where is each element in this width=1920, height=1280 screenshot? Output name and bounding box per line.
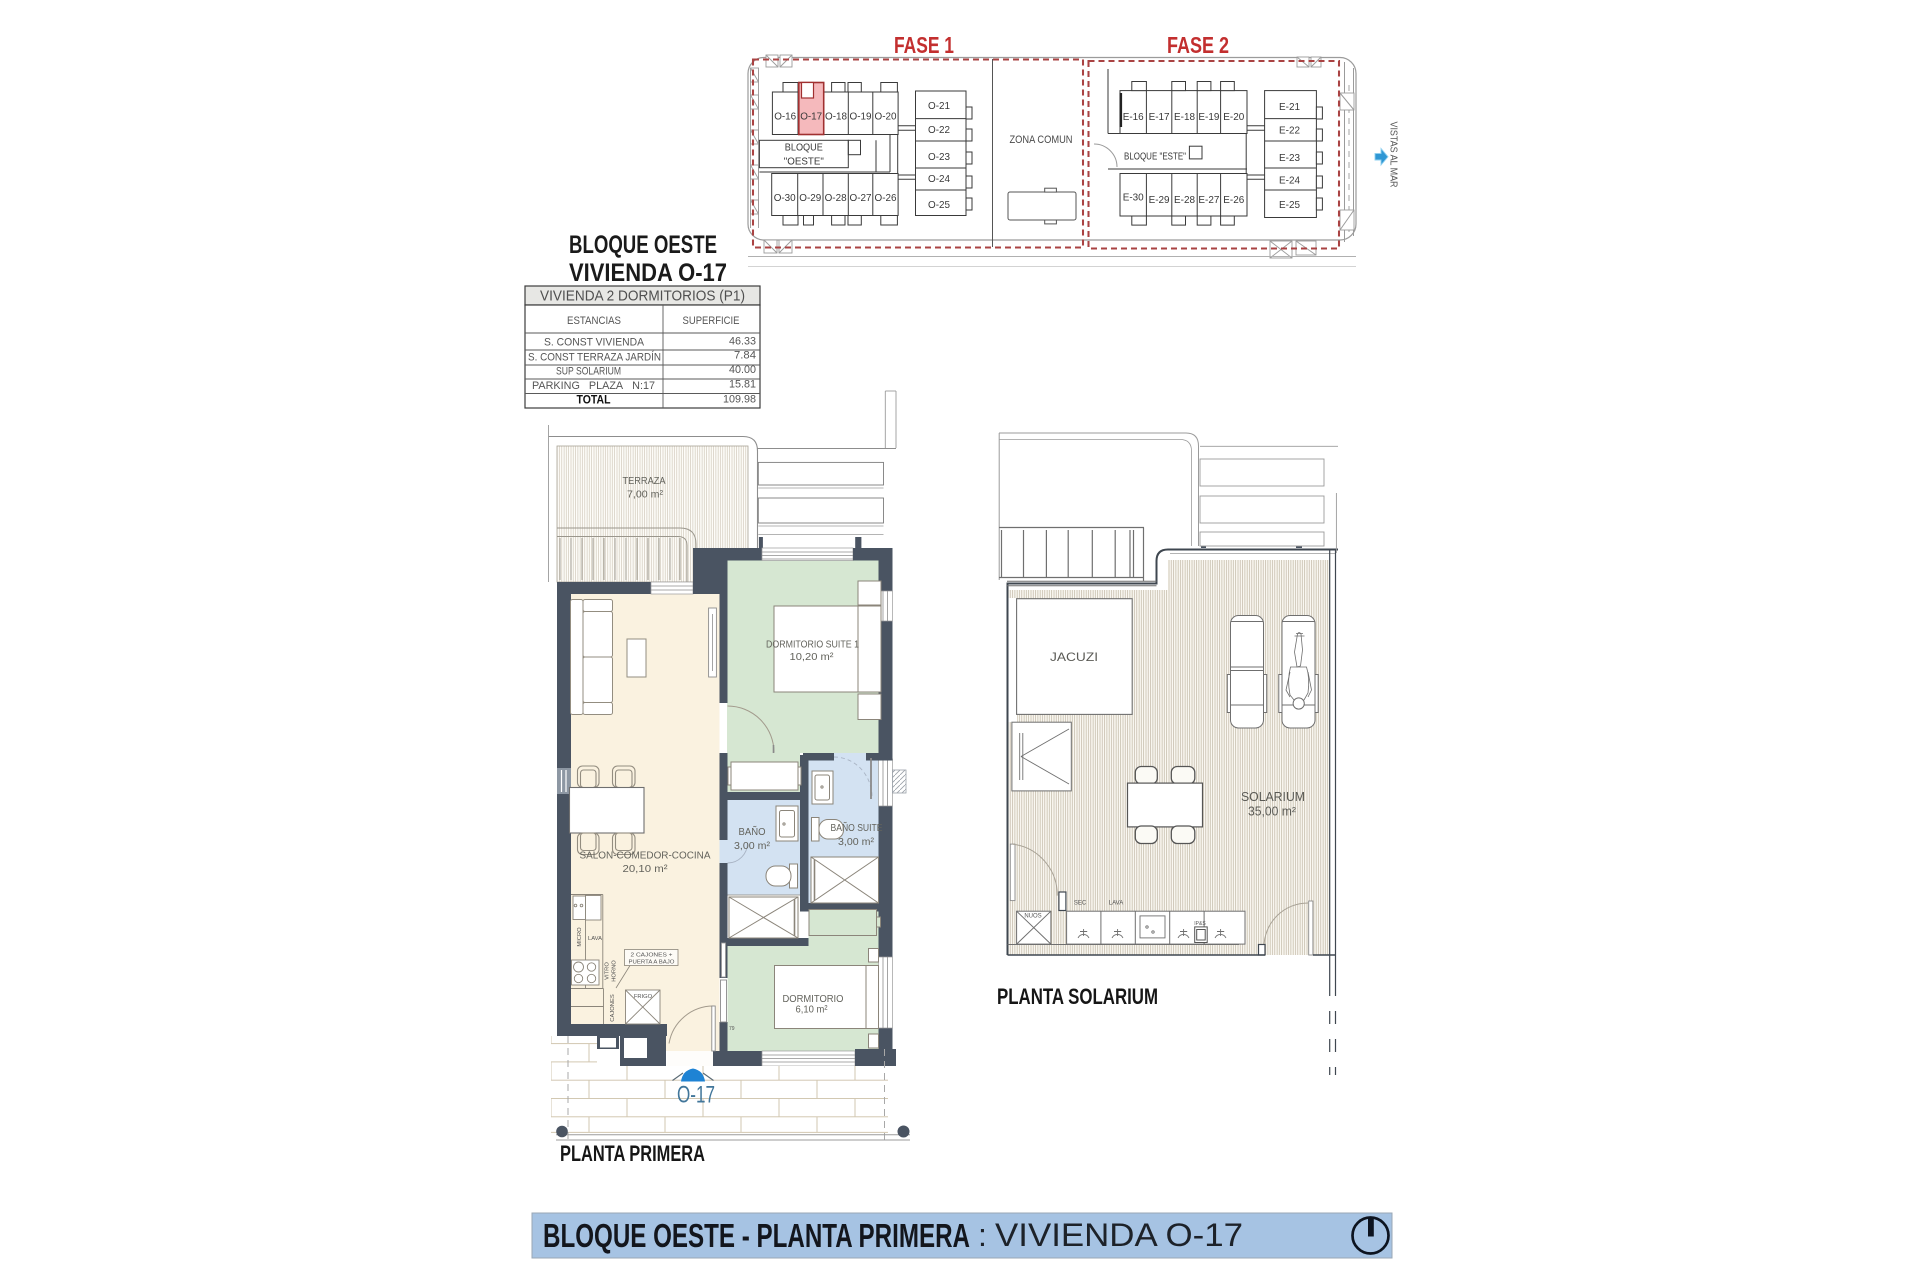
svg-text:O-29: O-29 <box>799 192 821 204</box>
svg-text:O-26: O-26 <box>875 192 897 204</box>
svg-text:O-24: O-24 <box>928 173 950 185</box>
svg-text:O-28: O-28 <box>825 192 847 204</box>
svg-text:BLOQUE "ESTE": BLOQUE "ESTE" <box>1124 151 1186 163</box>
svg-text:LAVA: LAVA <box>588 936 602 942</box>
svg-text:7,00 m²: 7,00 m² <box>627 490 664 501</box>
svg-text:TOTAL: TOTAL <box>577 395 611 407</box>
svg-text:O-17: O-17 <box>800 111 822 123</box>
svg-text:E-25: E-25 <box>1279 199 1300 211</box>
svg-text:E-26: E-26 <box>1223 194 1244 206</box>
svg-text:S. CONST TERRAZA JARDÍN: S. CONST TERRAZA JARDÍN <box>528 351 661 364</box>
svg-text:HORNO: HORNO <box>612 960 618 982</box>
svg-text:LAVA: LAVA <box>1109 901 1123 907</box>
svg-text:E-16: E-16 <box>1123 111 1144 123</box>
svg-text:35,00 m²: 35,00 m² <box>1248 805 1296 819</box>
svg-text:PARKING PLAZA N:17: PARKING PLAZA N:17 <box>532 380 655 392</box>
svg-text:E-22: E-22 <box>1279 125 1300 137</box>
svg-text:ESTANCIAS: ESTANCIAS <box>567 315 621 327</box>
svg-text:O-27: O-27 <box>850 192 872 204</box>
svg-text:FASE 2: FASE 2 <box>1167 32 1229 58</box>
svg-text:SUPERFICIE: SUPERFICIE <box>683 315 740 327</box>
svg-text:DORMITORIO: DORMITORIO <box>783 994 844 1005</box>
svg-text:ZONA COMUN: ZONA COMUN <box>1010 134 1073 146</box>
svg-text:VISTAS AL MAR: VISTAS AL MAR <box>1388 122 1400 188</box>
svg-text:109.98: 109.98 <box>723 394 756 406</box>
svg-text:O-21: O-21 <box>928 100 950 112</box>
svg-text:E-23: E-23 <box>1279 152 1300 164</box>
svg-text:3,00 m²: 3,00 m² <box>734 841 771 852</box>
svg-text:SUP SOLARIUM: SUP SOLARIUM <box>556 366 621 378</box>
svg-text:MICRO: MICRO <box>577 927 583 947</box>
svg-text:JACUZI: JACUZI <box>1050 650 1098 664</box>
svg-text:PUERTA A BAJO: PUERTA A BAJO <box>629 960 676 966</box>
svg-text:FRIGO: FRIGO <box>634 994 653 1000</box>
svg-text:3,00 m²: 3,00 m² <box>838 837 875 848</box>
svg-text:VIVIENDA O-17: VIVIENDA O-17 <box>569 259 727 287</box>
svg-text:SOLARIUM: SOLARIUM <box>1241 790 1305 804</box>
svg-text:VIVIENDA 2 DORMITORIOS (P1): VIVIENDA 2 DORMITORIOS (P1) <box>540 288 745 305</box>
svg-text:VIVIENDA O-17: VIVIENDA O-17 <box>995 1217 1243 1253</box>
svg-text:TERRAZA: TERRAZA <box>623 476 666 487</box>
svg-text:O-19: O-19 <box>850 111 872 123</box>
svg-text:PLANTA SOLARIUM: PLANTA SOLARIUM <box>997 984 1158 1009</box>
svg-text:46.33: 46.33 <box>729 336 756 348</box>
svg-text:S. CONST VIVIENDA: S. CONST VIVIENDA <box>544 337 645 349</box>
svg-text:E-19: E-19 <box>1198 111 1219 123</box>
svg-text:O-25: O-25 <box>928 199 950 211</box>
svg-text:E-30: E-30 <box>1123 192 1144 204</box>
svg-text:PLANTA PRIMERA: PLANTA PRIMERA <box>560 1141 705 1166</box>
svg-text:E-27: E-27 <box>1198 194 1219 206</box>
svg-text:BAÑO SUITE: BAÑO SUITE <box>831 821 883 834</box>
svg-text:NUOS: NUOS <box>1024 914 1041 920</box>
svg-text:DORMITORIO SUITE 1: DORMITORIO SUITE 1 <box>766 640 859 651</box>
svg-text:BLOQUE OESTE: BLOQUE OESTE <box>569 231 717 259</box>
svg-text:SALON-COMEDOR-COCINA: SALON-COMEDOR-COCINA <box>580 851 711 862</box>
svg-text:SEC: SEC <box>1074 901 1087 907</box>
svg-text::: : <box>978 1217 987 1253</box>
svg-text:O-30: O-30 <box>774 192 796 204</box>
svg-text:O-17: O-17 <box>677 1082 715 1109</box>
svg-text:E-18: E-18 <box>1174 111 1195 123</box>
svg-text:O-23: O-23 <box>928 151 950 163</box>
svg-text:E-28: E-28 <box>1174 194 1195 206</box>
svg-text:"OESTE": "OESTE" <box>784 156 824 168</box>
svg-text:E-21: E-21 <box>1279 101 1300 113</box>
svg-text:O-18: O-18 <box>825 111 847 123</box>
svg-text:FASE 1: FASE 1 <box>894 32 954 58</box>
svg-text:E-24: E-24 <box>1279 175 1300 187</box>
svg-text:E-17: E-17 <box>1149 111 1170 123</box>
svg-text:CAJONES: CAJONES <box>610 994 616 1022</box>
svg-text:15.81: 15.81 <box>729 379 756 391</box>
svg-text:O-22: O-22 <box>928 124 950 136</box>
svg-text:20,10 m²: 20,10 m² <box>623 864 669 875</box>
svg-text:6,10 m²: 6,10 m² <box>796 1005 829 1016</box>
svg-text:BLOQUE: BLOQUE <box>785 142 823 154</box>
svg-text:VITRO: VITRO <box>605 962 611 980</box>
svg-text:O-20: O-20 <box>875 111 897 123</box>
svg-text:O-16: O-16 <box>774 111 796 123</box>
svg-text:79: 79 <box>729 1026 735 1032</box>
svg-text:E-20: E-20 <box>1223 111 1244 123</box>
svg-text:2 CAJONES +: 2 CAJONES + <box>631 953 674 959</box>
svg-text:BAÑO: BAÑO <box>739 825 766 838</box>
svg-text:IP&S: IP&S <box>1194 921 1206 927</box>
svg-text:10,20 m²: 10,20 m² <box>790 652 835 663</box>
svg-text:BLOQUE OESTE - PLANTA PRIMERA: BLOQUE OESTE - PLANTA PRIMERA <box>543 1217 970 1254</box>
svg-text:7.84: 7.84 <box>734 350 756 362</box>
svg-text:E-29: E-29 <box>1149 194 1170 206</box>
svg-text:40.00: 40.00 <box>729 364 756 376</box>
